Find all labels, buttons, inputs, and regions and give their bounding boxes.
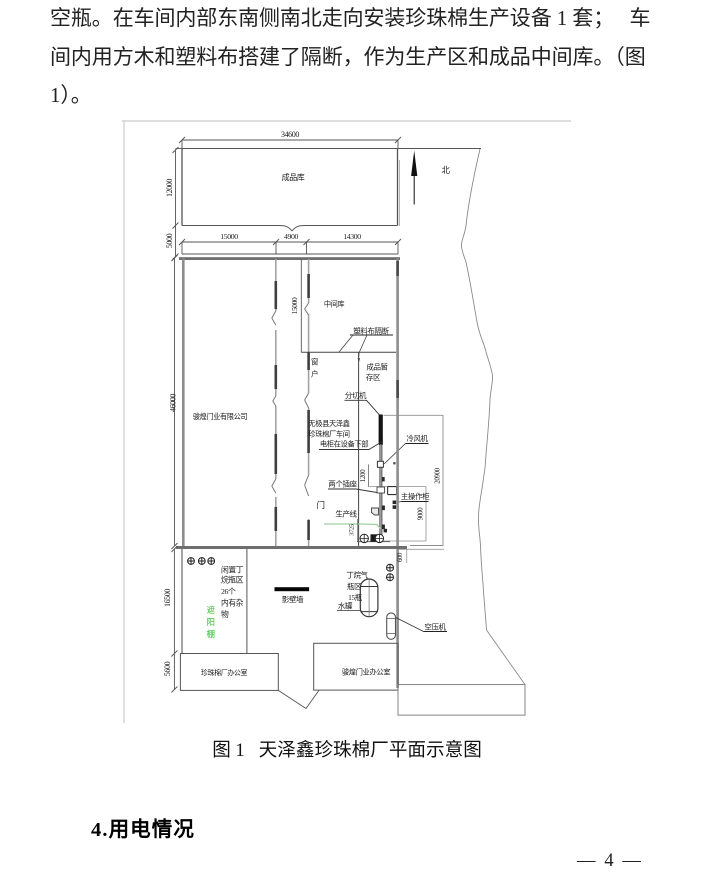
svg-text:冷风机: 冷风机 bbox=[406, 433, 428, 443]
svg-text:1200: 1200 bbox=[359, 469, 367, 482]
svg-text:9000: 9000 bbox=[416, 507, 424, 520]
svg-text:14300: 14300 bbox=[343, 232, 361, 241]
svg-text:珍珠棉厂办公室: 珍珠棉厂办公室 bbox=[201, 668, 248, 677]
svg-text:26个: 26个 bbox=[221, 587, 236, 596]
svg-text:烷瓶区: 烷瓶区 bbox=[221, 575, 244, 585]
svg-text:窗: 窗 bbox=[311, 357, 318, 367]
svg-text:3725: 3725 bbox=[349, 524, 356, 536]
svg-text:15000: 15000 bbox=[220, 232, 238, 241]
svg-text:15000: 15000 bbox=[290, 297, 299, 314]
svg-text:5000: 5000 bbox=[165, 233, 174, 248]
svg-text:骏煌门业办公室: 骏煌门业办公室 bbox=[342, 668, 390, 677]
svg-text:珍珠棉厂车间: 珍珠棉厂车间 bbox=[308, 430, 349, 439]
svg-text:生产线: 生产线 bbox=[335, 509, 357, 519]
svg-text:阳: 阳 bbox=[206, 617, 214, 627]
svg-text:户: 户 bbox=[311, 369, 318, 379]
svg-text:空压机: 空压机 bbox=[424, 622, 446, 632]
svg-text:物: 物 bbox=[221, 609, 229, 619]
svg-text:内有杂: 内有杂 bbox=[221, 598, 244, 608]
svg-text:存区: 存区 bbox=[366, 372, 381, 382]
svg-text:600: 600 bbox=[397, 552, 404, 562]
svg-text:成品库: 成品库 bbox=[282, 172, 305, 182]
svg-text:门: 门 bbox=[316, 500, 324, 510]
svg-text:46000: 46000 bbox=[169, 394, 178, 412]
svg-text:4900: 4900 bbox=[284, 232, 298, 241]
svg-text:北: 北 bbox=[441, 165, 450, 175]
svg-text:16500: 16500 bbox=[163, 589, 172, 607]
svg-text:塑料布隔断: 塑料布隔断 bbox=[353, 326, 389, 336]
svg-text:两个插座: 两个插座 bbox=[328, 479, 357, 489]
svg-text:分切机: 分切机 bbox=[345, 390, 367, 400]
svg-text:影壁墙: 影壁墙 bbox=[282, 594, 304, 604]
svg-text:无极县天泽鑫: 无极县天泽鑫 bbox=[308, 419, 349, 428]
svg-text:骏煌门业有限公司: 骏煌门业有限公司 bbox=[193, 412, 248, 421]
svg-text:闲置丁: 闲置丁 bbox=[221, 566, 244, 575]
svg-text:成品暂: 成品暂 bbox=[366, 362, 388, 372]
svg-text:中间库: 中间库 bbox=[324, 300, 345, 309]
svg-text:电柜在设备下部: 电柜在设备下部 bbox=[320, 440, 368, 449]
svg-text:棚: 棚 bbox=[206, 629, 214, 639]
svg-text:遮: 遮 bbox=[206, 605, 215, 615]
svg-text:丁烷气: 丁烷气 bbox=[346, 570, 368, 580]
svg-text:水罐: 水罐 bbox=[338, 601, 353, 611]
svg-text:20900: 20900 bbox=[434, 467, 442, 483]
svg-text:34600: 34600 bbox=[281, 130, 299, 139]
svg-text:5600: 5600 bbox=[163, 661, 172, 676]
svg-text:主操作柜: 主操作柜 bbox=[401, 491, 430, 501]
svg-text:12000: 12000 bbox=[165, 179, 174, 197]
